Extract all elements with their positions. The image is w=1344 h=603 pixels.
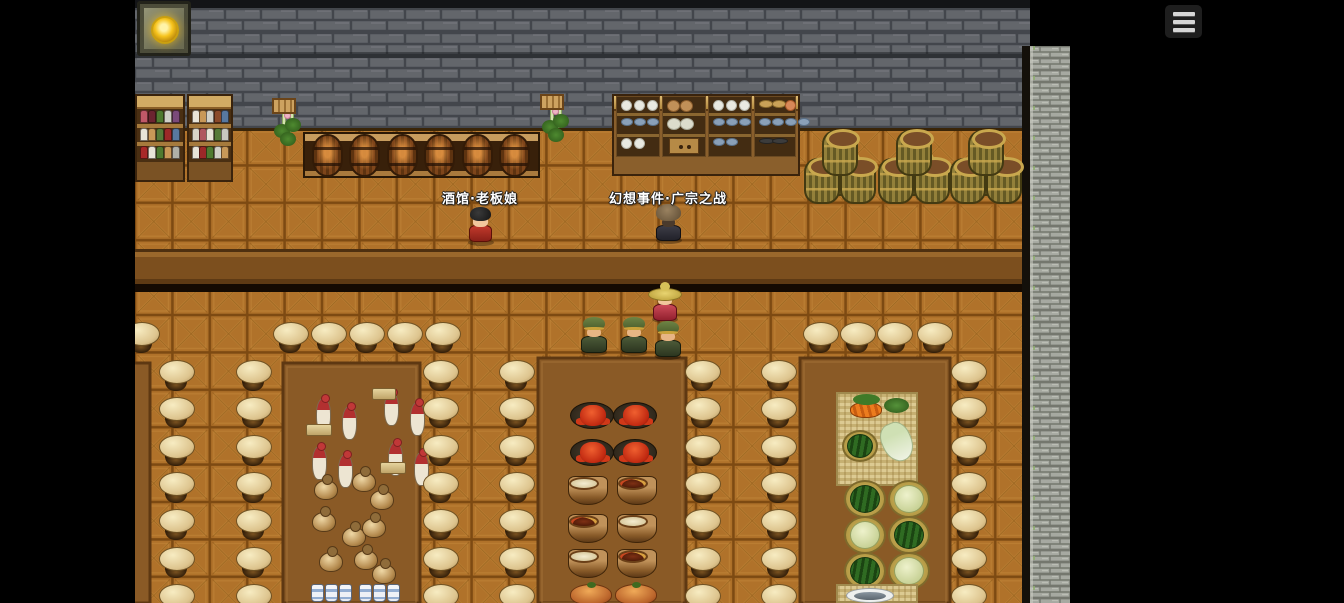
stool [917,322,951,353]
winter-melon [850,521,880,549]
porcelain-cup [311,584,324,602]
stool [236,435,270,466]
cooking-pot [617,476,657,505]
body [469,225,492,242]
stool [159,547,193,578]
crab-dish [570,439,614,466]
sake-jug [352,472,376,492]
menu-button[interactable] [1164,4,1203,39]
stool [761,397,795,428]
pot-contents [618,477,648,490]
shelf-item [156,146,164,159]
cupboard-item [785,118,797,126]
sake-jug [312,512,336,532]
cupboard-drawer [669,138,699,154]
stool [236,397,270,428]
stool [499,360,533,391]
bamboo-plant [272,98,304,176]
shelf-item [172,110,180,123]
storage-barrel [822,130,858,176]
wine-barrel [424,134,455,177]
cooking-pot [568,476,608,505]
stool [273,322,307,353]
fish-plate [846,588,894,603]
melon-basket [888,516,930,554]
npc-innkeeper[interactable] [464,205,498,245]
cupboard-item [759,118,771,126]
sake-jug [319,552,343,572]
cooking-pot [617,549,657,578]
porcelain-cup [387,584,400,602]
drawer-knob [687,145,691,149]
stool [685,584,719,603]
stool [951,397,985,428]
cupboard-item [726,138,738,146]
stool [685,509,719,540]
stool [499,435,533,466]
storage-barrel [968,130,1004,176]
crab-dish [613,439,657,466]
stool [236,472,270,503]
plant-leaves [553,114,569,128]
stool [685,547,719,578]
npc-soldier[interactable] [617,315,651,355]
body [581,336,607,353]
npc-label-event: 幻想事件·广宗之战 [603,192,733,207]
shelf-item [172,128,180,141]
cupboard-section [708,96,752,157]
stool [423,360,457,391]
shelf-item [221,146,229,159]
sake-jug [372,564,396,584]
stool [159,360,193,391]
stool [236,584,270,603]
winter-melon [894,557,924,585]
porcelain-cup [325,584,338,602]
stool [761,435,795,466]
sake-jug [314,480,338,500]
watermelon [850,557,880,585]
lantern-glow [151,16,179,44]
cupboard-item [634,138,645,149]
cupboard-item [647,100,658,111]
cupboard-item [739,100,750,111]
wine-barrel [349,134,380,177]
shelf-item [140,110,148,123]
wine-barrel [312,134,343,177]
stool [951,360,985,391]
cupboard-item [680,100,693,112]
cooking-pot [568,514,608,543]
stool [685,360,719,391]
stool [951,509,985,540]
cupboard-item [647,118,659,126]
face [584,327,604,330]
plant-pot [272,98,296,114]
cupboard-item [667,118,681,130]
stool [761,472,795,503]
game-stage[interactable]: 酒馆·老板娘 幻想事件·广宗之战 [0,0,1344,603]
npc-straw-hat[interactable] [648,282,682,322]
wine-barrel [499,134,530,177]
cupboard-item [634,118,646,126]
greens-bunch [884,398,909,413]
stool [685,472,719,503]
pot-contents [618,550,648,563]
porcelain-cup [359,584,372,602]
npc-event-hooded[interactable] [652,203,686,243]
body [656,225,681,241]
wine-barrel [387,134,418,177]
watermelon [847,434,873,458]
cupboard-section [616,96,660,157]
storage-barrel [896,130,932,176]
shelf-item [221,128,229,141]
shelf-item [156,110,164,123]
shelf-item [164,128,172,141]
left-letterbox [0,0,135,603]
stool [159,435,193,466]
bamboo-plant [540,94,572,172]
stool [803,322,837,353]
plant-leaves [285,118,301,132]
wooden-tray [306,424,332,436]
stool [236,360,270,391]
sake-bottle [342,406,357,440]
stool [951,584,985,603]
stool [236,547,270,578]
npc-label-innkeeper: 酒馆·老板娘 [420,192,540,207]
cupboard-item [772,138,788,144]
shelf-item [140,146,148,159]
stool [423,397,457,428]
cupboard-item [621,100,632,111]
shelf-item [148,146,156,159]
cupboard-item [759,100,773,108]
cupboard-section [662,96,706,157]
right-letterbox [1070,0,1344,603]
watermelon [850,485,880,513]
shelf-item [164,110,172,123]
porcelain-cup [339,584,352,602]
sake-jug [370,490,394,510]
plant-pot [540,94,564,110]
stool [423,584,457,603]
stool [761,584,795,603]
cupboard-item [772,118,784,126]
cupboard-item [726,118,738,126]
conehat [660,282,670,291]
daikon-radish [875,418,919,467]
stool [499,472,533,503]
cupboard-item [785,100,796,111]
stool [951,472,985,503]
stool [499,397,533,428]
melon-basket [888,480,930,518]
plant-leaves [548,128,564,142]
shelf-item [156,128,164,141]
stool [685,397,719,428]
stool [685,435,719,466]
shelf-item [172,146,180,159]
body [655,340,681,357]
cupboard-item [621,138,632,149]
cupboard-item [680,118,694,130]
shelf-item [221,110,229,123]
stool [761,547,795,578]
cupboard-item [713,118,725,126]
cupboard-item [713,100,724,111]
stool [311,322,345,353]
face [658,331,678,334]
melon-basket [844,480,886,518]
stool [761,360,795,391]
npc-soldier[interactable] [577,315,611,355]
watermelon [894,521,924,549]
wooden-tray [380,462,406,474]
cooking-pot [568,549,608,578]
cupboard-item [667,100,680,112]
porcelain-cup [373,584,386,602]
goods-shelf [135,94,185,182]
drawer-knob [679,145,683,149]
shelf-item [148,110,156,123]
stool [423,472,457,503]
stool [236,509,270,540]
melon-basket [842,430,878,462]
cupboard-item [713,138,725,146]
hair [470,207,491,221]
shelf-item [140,128,148,141]
stool [349,322,383,353]
pot-contents [569,550,599,563]
sake-bottle [338,454,353,488]
stool [840,322,874,353]
stool [877,322,911,353]
wine-barrel [462,134,493,177]
face [624,327,644,330]
cupboard-item [726,100,737,111]
melon-basket [844,516,886,554]
stool [499,547,533,578]
wooden-tray [372,388,396,400]
sake-jug [362,518,386,538]
cupboard-item [621,118,633,126]
goods-shelf [187,94,233,182]
hamburger-menu-icon [1173,12,1195,33]
roast-bird [615,584,657,603]
crab-dish [613,402,657,429]
stool [423,509,457,540]
dish-cupboard [612,94,800,176]
shelf-item [164,146,172,159]
fish-mat [836,584,918,603]
stool [159,397,193,428]
cupboard-item [634,100,645,111]
pot-contents [618,515,648,528]
cupboard-item [798,118,810,126]
stool [499,509,533,540]
pot-contents [569,477,599,490]
cupboard-item [772,100,786,108]
plant-leaves [280,132,296,146]
cooking-pot [617,514,657,543]
cupboard-section [754,96,796,157]
stool [761,509,795,540]
stool [951,547,985,578]
crab-dish [570,402,614,429]
stool [387,322,421,353]
wall-lantern-icon [137,1,191,56]
stool [159,584,193,603]
pot-contents [569,515,599,528]
winter-melon [894,485,924,513]
body [621,336,647,353]
npc-soldier[interactable] [651,319,685,359]
stool [423,547,457,578]
cupboard-item [739,118,751,126]
stool [159,509,193,540]
shelf-item [148,128,156,141]
stool [951,435,985,466]
stool [425,322,459,353]
carrot-bunch [850,402,882,418]
stool [159,472,193,503]
stool [499,584,533,603]
roast-bird [570,584,612,603]
produce-mat [836,392,918,486]
